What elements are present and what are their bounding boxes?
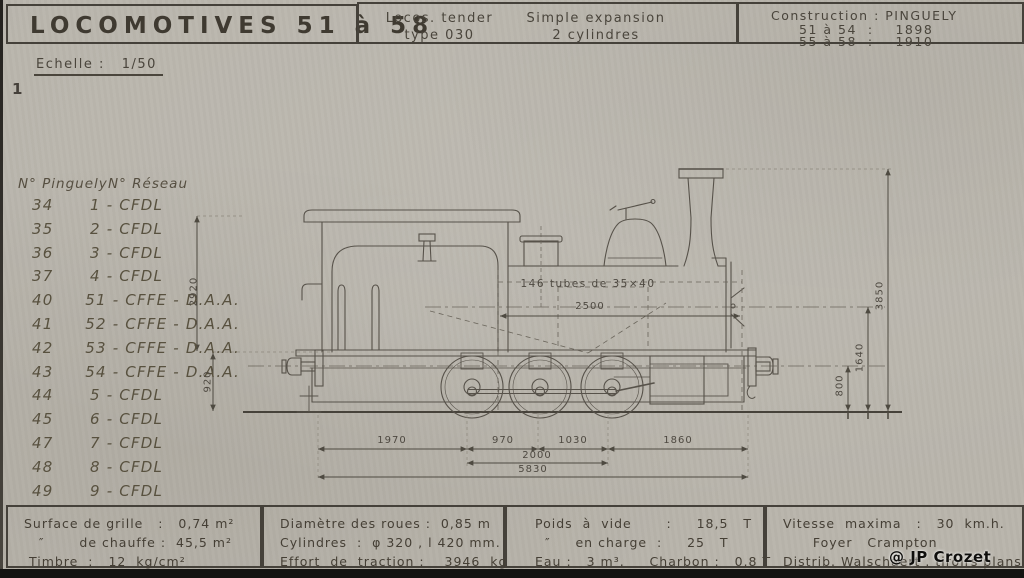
- spec-max-speed: Vitesse maxima : 30 km.h.: [783, 514, 1022, 533]
- scale-note: Echelle : 1/50: [34, 53, 163, 72]
- dim-boiler-tube-length: 2500: [555, 301, 625, 312]
- spec-cylinders: Cylindres : φ 320 , l 420 mm.: [280, 533, 503, 552]
- safety-valve-column: [418, 234, 436, 261]
- roster-row: 477 - CFDL: [10, 434, 240, 458]
- watermark-credit: @ JP Crozet: [889, 548, 991, 566]
- spec-heating-area: ″ de chauffe : 45,5 m²: [24, 533, 260, 552]
- spec-grate-area: Surface de grille : 0,74 m²: [24, 514, 260, 533]
- chimney: [679, 169, 723, 266]
- roster-row: 4152 - CFFE - D.A.A.: [10, 315, 240, 339]
- wheels: [441, 353, 643, 418]
- spec-box-boiler: Surface de grille : 0,74 m² ″ de chauffe…: [6, 505, 262, 568]
- roster-col2-header: N° Réseau: [108, 176, 188, 192]
- dim-cab-height: 2920: [189, 270, 200, 314]
- scan-edge-bottom: [0, 569, 1024, 578]
- spec-empty-weight: Poids à vide : 18,5 T: [535, 514, 763, 533]
- dim-total-wheelbase: 2000: [512, 450, 562, 461]
- dim-front-overhang: 1860: [652, 435, 704, 446]
- spec-box-running-gear: Diamètre des roues : 0,85 m Cylindres : …: [262, 505, 505, 568]
- rear-buffer: [282, 350, 323, 412]
- spec-loaded-weight: ″ en charge : 25 T: [535, 533, 763, 552]
- construction-box: Construction : PINGUELY 51 à 54 : 1898 5…: [737, 2, 1024, 44]
- roster-row: 4051 - CFFE - D.A.A.: [10, 291, 240, 315]
- dimension-construction: [197, 169, 893, 481]
- page-title: LOCOMOTIVES 51 à 58: [8, 6, 356, 39]
- dim-boiler-axis-height: 1640: [855, 338, 866, 378]
- roster-row: 352 - CFDL: [10, 220, 240, 244]
- roster-row: 456 - CFDL: [10, 410, 240, 434]
- roster-row: 341 - CFDL: [10, 196, 240, 220]
- frame: [296, 350, 756, 402]
- cab: [302, 210, 520, 352]
- roster-col1-header: N° Pinguely: [18, 176, 108, 192]
- construction-title: Construction : PINGUELY: [771, 8, 958, 23]
- construction-row-2: 55 à 58 : 1910: [799, 34, 933, 49]
- hidden-lines: [430, 226, 742, 412]
- title-box: LOCOMOTIVES 51 à 58: [6, 4, 358, 44]
- roster-row: 499 - CFDL: [10, 482, 240, 506]
- boiler: [508, 258, 744, 352]
- spec-wheel-diameter: Diamètre des roues : 0,85 m: [280, 514, 503, 533]
- roster-row: 374 - CFDL: [10, 267, 240, 291]
- page-number: 1: [12, 80, 22, 98]
- expansion-label: Simple expansion 2 cylindres: [521, 10, 671, 44]
- spec-box-weights: Poids à vide : 18,5 T ″ en charge : 25 T…: [505, 505, 765, 568]
- type-box: Locos. tender type 030 Simple expansion …: [357, 2, 738, 44]
- dimension-lines: [197, 169, 888, 477]
- scan-edge-left: [0, 0, 3, 578]
- tubes-annotation: 146 tubes de 35×40: [498, 278, 678, 290]
- loco-type-label: Locos. tender type 030: [377, 10, 502, 44]
- dim-rear-height: 920: [203, 362, 214, 402]
- dim-rear-overhang: 1970: [363, 435, 421, 446]
- roster-row: 363 - CFDL: [10, 244, 240, 268]
- roster-row: 488 - CFDL: [10, 458, 240, 482]
- dim-overall-height: 3850: [875, 276, 886, 316]
- steam-dome: [604, 200, 666, 267]
- roster-list: 341 - CFDL 352 - CFDL 363 - CFDL 374 - C…: [10, 196, 240, 505]
- dim-total-length: 5830: [507, 464, 559, 475]
- dim-axle-spacing-1: 970: [477, 435, 529, 446]
- roster-row: 4253 - CFFE - D.A.A.: [10, 339, 240, 363]
- dim-buffer-height: 800: [835, 366, 846, 406]
- dim-axle-spacing-2: 1030: [547, 435, 599, 446]
- locomotive-body: [282, 169, 778, 418]
- scanned-technical-sheet: LOCOMOTIVES 51 à 58 Locos. tender type 0…: [0, 0, 1024, 578]
